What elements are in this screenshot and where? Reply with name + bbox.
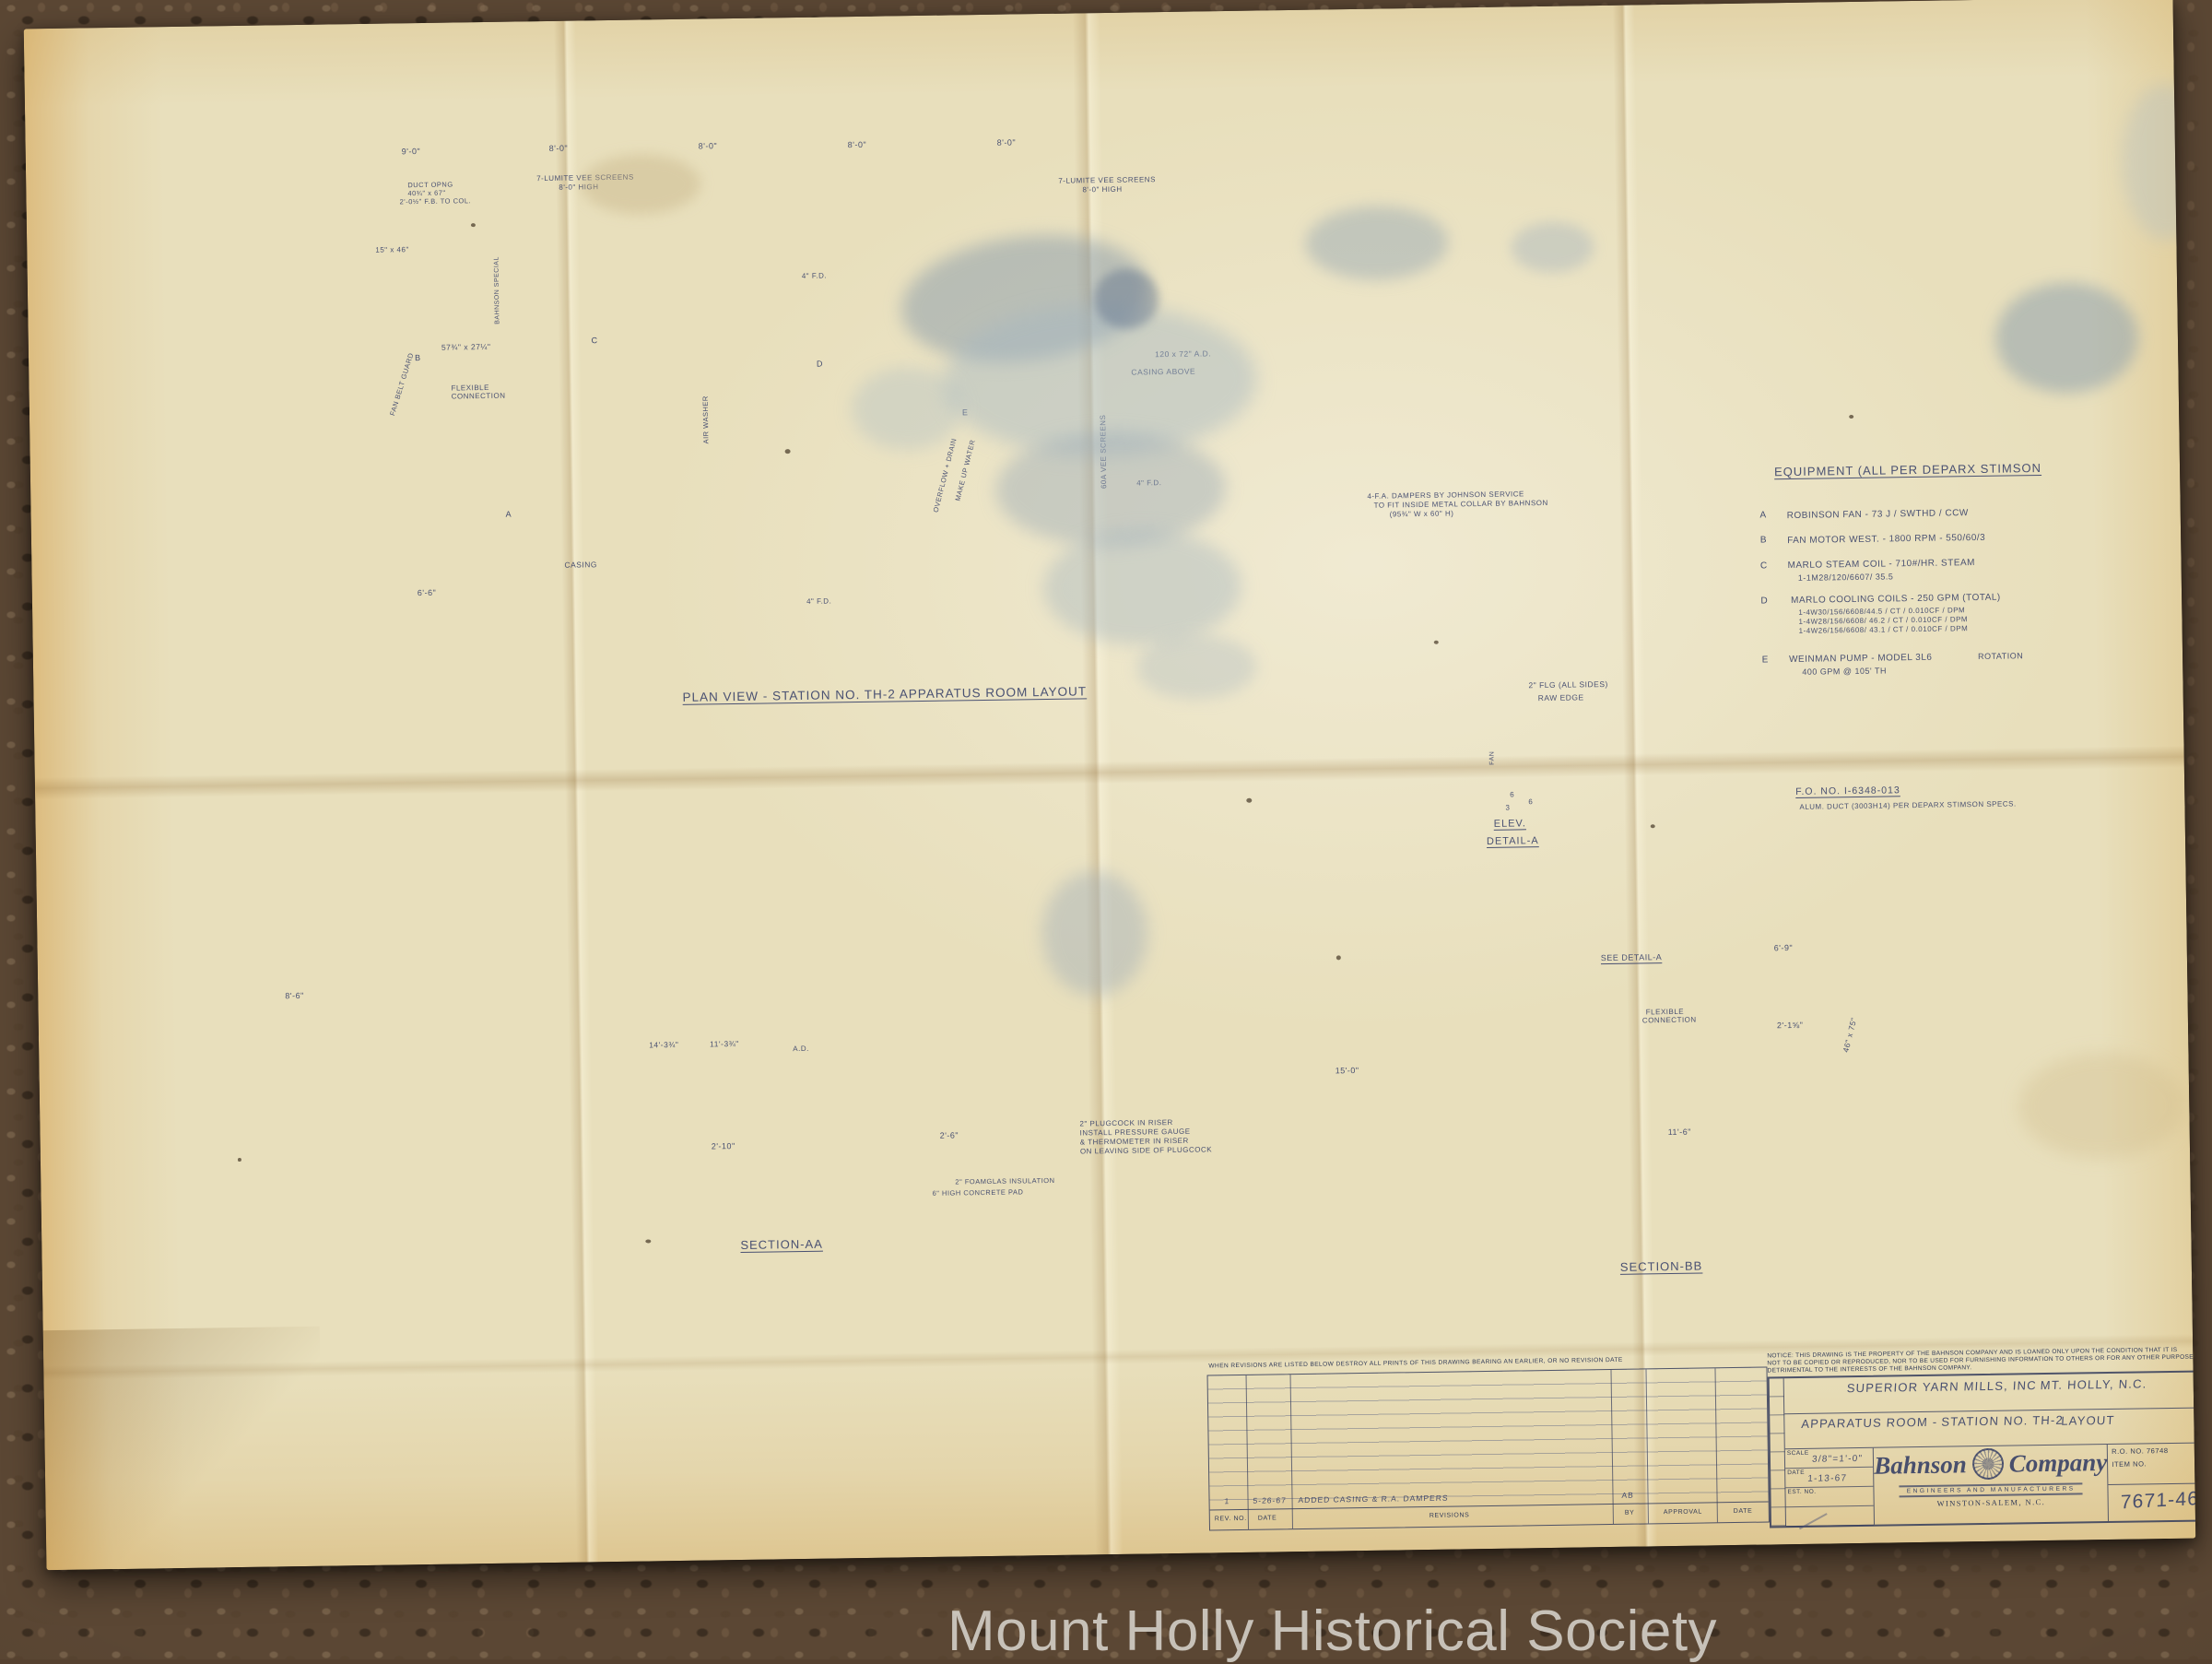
- company-city: WINSTON-SALEM, N.C.: [1875, 1496, 2108, 1509]
- revisions-block: WHEN REVISIONS ARE LISTED BELOW DESTROY …: [1206, 1354, 1770, 1534]
- dim-label: 2'-6": [940, 1130, 959, 1140]
- revisions-table: 1 5-26-67 ADDED CASING & R.A. DAMPERS AB…: [1207, 1366, 1770, 1530]
- company-subtitle: ENGINEERS AND MANUFACTURERS: [1900, 1482, 2083, 1497]
- detail-dim: 6: [1510, 790, 1514, 798]
- footer-date: DATE: [1258, 1515, 1277, 1521]
- equipment-row-tag: D: [1759, 596, 1770, 606]
- scale-date-column: SCALE3/8"=1'-0" DATE1-13-67 EST. NO.: [1785, 1448, 1875, 1526]
- item-number-label: ITEM NO.: [2112, 1458, 2195, 1469]
- fd-label: 4" F.D.: [802, 271, 827, 280]
- casing-above-note: CASING ABOVE: [1131, 368, 1195, 378]
- est-no-label: EST. NO.: [1787, 1489, 1816, 1495]
- detail-caption-elev: ELEV.: [1494, 818, 1526, 830]
- detail-dim: 3: [1505, 804, 1510, 812]
- equipment-tag-b: B: [412, 353, 423, 362]
- foamglas-note: 2" FOAMGLAS INSULATION: [955, 1177, 1054, 1186]
- plan-dim-label: 8'-0": [848, 140, 867, 150]
- size-note: 57¾" x 27¼": [441, 343, 491, 353]
- equipment-row-note: ROTATION: [1978, 651, 2023, 661]
- equipment-row-tag: A: [1758, 510, 1769, 520]
- revision-row-by: AB: [1621, 1491, 1634, 1500]
- drawing-title-layout: LAYOUT: [2061, 1413, 2115, 1428]
- detail-flange-note: 2" FLG (ALL SIDES): [1528, 680, 1607, 690]
- footer-by: BY: [1625, 1510, 1635, 1516]
- equipment-tag-c: C: [589, 336, 600, 345]
- flex-connection-note: CONNECTION: [452, 392, 506, 401]
- vee-screens-vertical-note: 60A VEE SCREENS: [1099, 415, 1108, 490]
- ro-number: R.O. NO. 76748: [2112, 1446, 2195, 1456]
- ad-note: 120 x 72" A.D.: [1155, 349, 1211, 360]
- vee-screen-note: 7-LUMITE VEE SCREENS: [1058, 175, 1156, 185]
- title-block: NOTICE: THIS DRAWING IS THE PROPERTY OF …: [1767, 1346, 2195, 1528]
- plugcock-note: 2" PLUGCOCK IN RISER: [1079, 1118, 1172, 1128]
- detail-dim: 6: [1528, 797, 1533, 806]
- equipment-tag-a: A: [503, 510, 514, 519]
- equipment-row-tag: C: [1758, 561, 1769, 571]
- customer-box: SUPERIOR YARN MILLS, INC MT. HOLLY, N.C.: [1784, 1372, 2196, 1414]
- company-name-left: Bahnson: [1874, 1450, 1967, 1480]
- vee-screen-note: 8'-0" HIGH: [1082, 185, 1122, 195]
- title-block-frame: SUPERIOR YARN MILLS, INC MT. HOLLY, N.C.…: [1768, 1370, 2196, 1528]
- flex-connection-note: CONNECTION: [1642, 1016, 1697, 1025]
- company-logo-block: Bahnson Company ENGINEERS AND MANUFACTUR…: [1874, 1445, 2108, 1525]
- footer-revisions: REVISIONS: [1430, 1512, 1470, 1519]
- vee-screen-note: 8'-0" HIGH: [559, 183, 598, 192]
- equipment-row-sub: 400 GPM @ 105' TH: [1802, 666, 1887, 677]
- fd-label: 4" F.D.: [1136, 478, 1161, 488]
- vee-screen-note: 7-LUMITE VEE SCREENS: [536, 173, 634, 183]
- equipment-row-sub: 1-1M28/120/6607/ 35.5: [1798, 572, 1894, 583]
- scale-value: 3/8"=1'-0": [1811, 1454, 1863, 1465]
- drawing-number-column: R.O. NO. 76748 ITEM NO. 7671-46: [2107, 1443, 2195, 1521]
- dim-label: 11'-3¾": [710, 1040, 739, 1049]
- size-note: 15" x 46": [375, 245, 409, 254]
- company-name-right: Company: [2009, 1448, 2108, 1479]
- duct-opening-note: 2'-0½" F.B. TO COL.: [400, 197, 472, 207]
- plan-dim-label: 8'-0": [997, 137, 1017, 148]
- fd-label: 4" F.D.: [806, 596, 831, 606]
- drawing-title-line2: STATION NO. TH-2: [1941, 1413, 2064, 1429]
- drawing-number: 7671-46: [2121, 1488, 2195, 1514]
- date-label: DATE: [1787, 1469, 1805, 1476]
- customer-city: MT. HOLLY, N.C.: [2041, 1376, 2148, 1392]
- detail-raw-edge-note: RAW EDGE: [1538, 693, 1584, 703]
- title-block-bottom: SCALE3/8"=1'-0" DATE1-13-67 EST. NO. Bah…: [1785, 1443, 2195, 1526]
- dim-label: 11'-6": [1668, 1127, 1691, 1138]
- dim-label: 2'-10": [712, 1141, 735, 1151]
- bahnson-special-note: BAHNSON SPECIAL: [493, 256, 501, 325]
- dim-label: 2'-1⅝": [1777, 1021, 1804, 1031]
- equipment-row-tag: E: [1759, 655, 1771, 665]
- carpet-background: PLAN VIEW - STATION NO. TH-2 APPARATUS R…: [0, 0, 2212, 1659]
- dim-label: 15'-0": [1335, 1066, 1359, 1076]
- revision-row-date: 5-26-67: [1253, 1495, 1287, 1505]
- footer-date2: DATE: [1734, 1508, 1753, 1515]
- dim-label: 14'-3¾": [649, 1041, 678, 1050]
- equipment-row-tag: B: [1758, 535, 1769, 545]
- checker-initials-scribble: [1794, 1505, 1828, 1529]
- equipment-tag-d: D: [814, 360, 825, 369]
- damper-note: (95¾" W x 60" H): [1390, 509, 1454, 518]
- plan-dim-label: 8'-0": [549, 144, 569, 154]
- footer-approval: APPROVAL: [1664, 1509, 1702, 1516]
- dim-label: 6'-9": [1774, 943, 1794, 953]
- equipment-row-text: WEINMAN PUMP - MODEL 3L6: [1789, 653, 1933, 666]
- revision-row-number: 1: [1224, 1496, 1230, 1505]
- see-detail-note: SEE DETAIL-A: [1601, 952, 1663, 962]
- bahnson-seal-icon: [1972, 1448, 2005, 1481]
- watermark-text: Mount Holly Historical Society: [947, 1599, 1717, 1664]
- drawing-title-box: APPARATUS ROOM - LAYOUT STATION NO. TH-2: [1784, 1408, 2195, 1449]
- dim-label: 8'-6": [285, 991, 304, 1001]
- air-washer-note: AIR WASHER: [702, 395, 711, 443]
- customer-name: SUPERIOR YARN MILLS, INC: [1846, 1378, 2037, 1395]
- dim-label: 6'-6": [418, 588, 437, 598]
- casing-note: CASING: [564, 561, 597, 570]
- detail-fan-label: FAN: [1489, 751, 1497, 765]
- date-value: 1-13-67: [1807, 1473, 1847, 1484]
- drawing-title-line1: APPARATUS ROOM -: [1801, 1415, 1938, 1431]
- plan-dim-label: 8'-0": [699, 141, 718, 151]
- footer-rev-no: REV. NO.: [1215, 1516, 1247, 1523]
- drawing-artwork: PLAN VIEW - STATION NO. TH-2 APPARATUS R…: [24, 0, 2196, 1570]
- plan-dim-label: 9'-0": [402, 147, 421, 157]
- section-bb-caption: SECTION-BB: [1620, 1260, 1703, 1275]
- section-aa-caption: SECTION-AA: [740, 1238, 823, 1253]
- concrete-pad-note: 6" HIGH CONCRETE PAD: [933, 1188, 1024, 1198]
- ad-label: A.D.: [793, 1044, 809, 1053]
- detail-caption-name: DETAIL-A: [1487, 835, 1539, 847]
- equipment-tag-e: E: [959, 407, 971, 417]
- scale-label: SCALE: [1787, 1450, 1809, 1457]
- blueprint-sheet: PLAN VIEW - STATION NO. TH-2 APPARATUS R…: [24, 0, 2196, 1570]
- fo-number-note: F.O. NO. I-6348-013: [1795, 785, 1900, 797]
